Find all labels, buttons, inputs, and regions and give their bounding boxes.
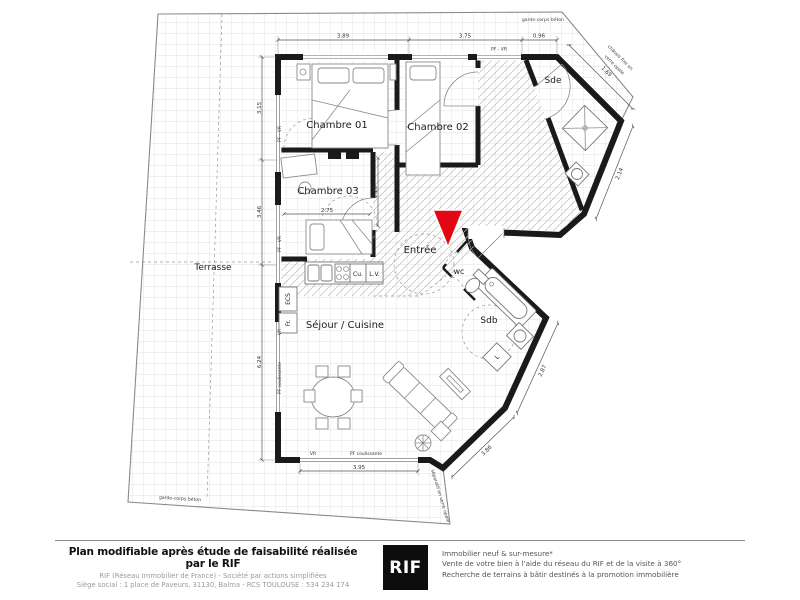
dim-left-upper: 3.15: [257, 101, 263, 114]
bed-single-ch03: [306, 220, 372, 254]
dim-diag-sejour: 3.86: [481, 444, 494, 457]
dim-top-mid: 3.75: [459, 34, 472, 40]
label-ecs: ECS: [285, 293, 292, 305]
bed-single-ch02: [406, 62, 440, 175]
rif-logo: RIF: [383, 545, 428, 590]
room-label-terrasse: Terrasse: [193, 263, 232, 273]
opening-label-pfvr-top: PF - VR: [491, 47, 507, 53]
bed-double: [297, 64, 396, 148]
room-label-wc: wc: [454, 267, 465, 276]
floor-plan-page: Cu. L.V. ECS Fr. L: [0, 0, 800, 600]
dim-left-lower: 6.24: [257, 355, 263, 368]
footer-service-1: Immobilier neuf & sur-mesure*: [442, 549, 772, 559]
footer-disclaimer-block: Plan modifiable après étude de faisabili…: [58, 546, 368, 590]
dim-chambre03-width: 2.75: [321, 208, 334, 214]
desk: [281, 154, 317, 178]
dim-top-left: 3.89: [337, 34, 350, 40]
annotation-garde-corps-top: garde-corps béton: [522, 16, 564, 23]
room-label-sde: Sde: [545, 76, 562, 86]
opening-label-pfvr-ch01: PF - VR: [277, 126, 283, 142]
rif-logo-text: RIF: [389, 558, 422, 578]
footer-service-2: Vente de votre bien à l'aide du réseau d…: [442, 559, 772, 569]
opening-label-vr-bottom: VR: [310, 451, 316, 457]
floor-plan-drawing: Cu. L.V. ECS Fr. L: [0, 0, 800, 540]
footer-disclaimer: Plan modifiable après étude de faisabili…: [58, 546, 368, 570]
room-label-chambre03: Chambre 03: [297, 186, 358, 197]
footer-company-line2: Siège social : 1 place de Paveurs, 31130…: [58, 581, 368, 590]
label-cuisson: Cu.: [353, 271, 363, 278]
dim-bottom: 3.95: [353, 465, 366, 471]
hob: [335, 264, 350, 282]
opening-label-pfcoul-left: PF coulissante: [277, 362, 283, 394]
dim-hall-width: 1.20: [373, 185, 379, 198]
footer-divider: [55, 540, 745, 541]
opening-label-vr-left: VR: [277, 329, 283, 335]
room-label-sdb: Sdb: [480, 316, 497, 326]
footer-services: Immobilier neuf & sur-mesure* Vente de v…: [442, 549, 772, 580]
opening-label-pfcoul-bottom: PF coulissante: [350, 451, 382, 457]
dim-top-right: 0.96: [533, 34, 546, 40]
room-label-sejour: Séjour / Cuisine: [306, 319, 384, 331]
label-lave-vaisselle: L.V.: [369, 271, 380, 278]
dim-diag-sdb: 2.87: [538, 364, 549, 378]
footer-service-3: Recherche de terrains à bâtir destinés à…: [442, 570, 772, 580]
dim-left-mid: 3.46: [257, 205, 263, 218]
room-label-entree: Entrée: [404, 244, 437, 256]
footer-company-line1: RIF (Réseau Immobilier de France) - Soci…: [58, 572, 368, 581]
footer: Plan modifiable après étude de faisabili…: [0, 540, 800, 600]
label-frigo: Fr.: [285, 319, 292, 326]
room-label-chambre01: Chambre 01: [306, 120, 367, 131]
opening-label-pfvr-ch03: PF - VR: [277, 236, 283, 252]
room-label-chambre02: Chambre 02: [407, 122, 468, 133]
dim-diag-sde-side: 2.14: [615, 167, 625, 181]
plant: [415, 435, 431, 451]
